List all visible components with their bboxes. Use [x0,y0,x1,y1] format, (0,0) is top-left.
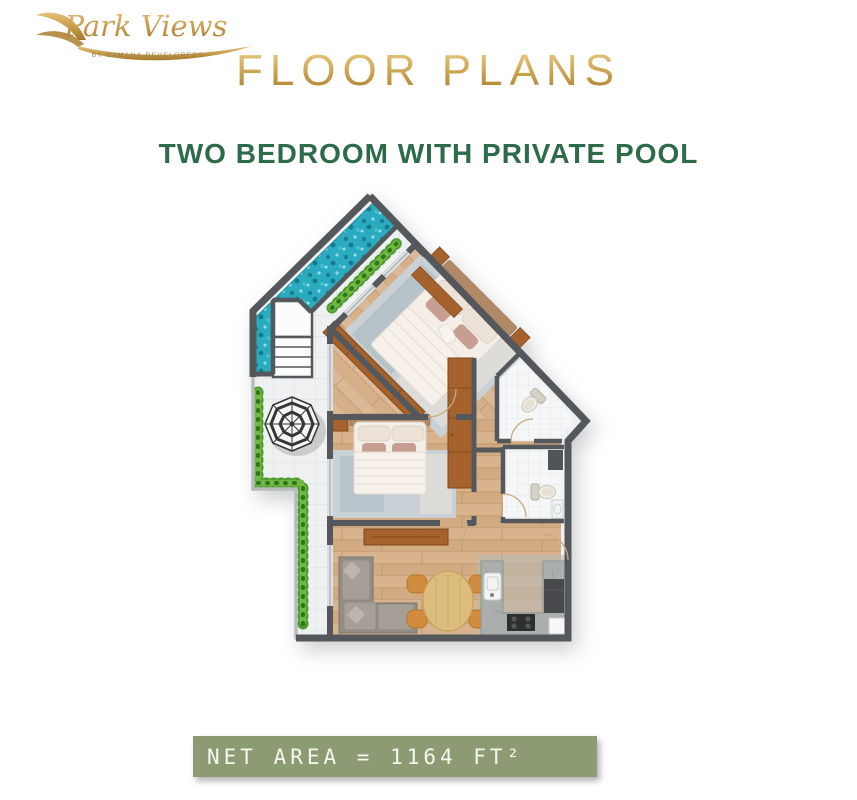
net-area-bar: NET AREA = 1164 FT² [193,736,597,777]
faucet [490,593,494,597]
brochure-page: Park Views BY SAMANA DEVELOPERS FLOOR PL… [0,0,857,800]
bath-cabinet [548,450,563,470]
guest-toilet [531,484,556,500]
stove [507,614,535,631]
net-area-label: NET AREA = 1164 FT² [207,745,523,769]
burner [525,616,530,621]
unit-type-subtitle: TWO BEDROOM WITH PRIVATE POOL [0,138,857,170]
wardrobe-column [448,358,474,488]
pillow [358,426,390,441]
pool-stairs [273,300,312,377]
dining-chair [407,610,427,628]
floor-plan-illustration [238,190,610,658]
page-title: FLOOR PLANS [0,48,857,94]
brand-name: Park Views [64,9,228,43]
pillow [392,426,424,441]
burner [511,616,516,621]
fridge [544,579,564,613]
washing-machine [549,618,565,634]
duvet [354,452,426,494]
burner [525,623,530,628]
burner [511,623,516,628]
